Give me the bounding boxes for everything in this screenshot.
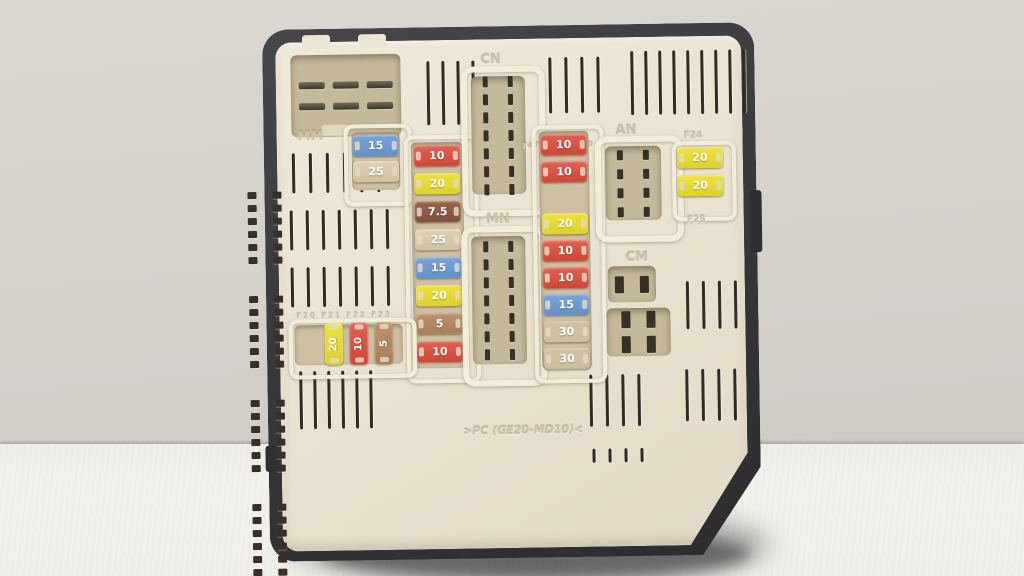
label-cm: CM (625, 250, 648, 265)
vent-slot (387, 266, 391, 306)
fuse-amp-label: 20 (328, 337, 339, 351)
fuse-amp-label: 25 (368, 165, 384, 178)
cn-connector (471, 76, 527, 195)
fuse-amp-label: 20 (693, 179, 709, 192)
pin-slot (252, 504, 261, 511)
pin-slot (643, 149, 649, 159)
vent-slot (292, 153, 296, 193)
vent-slot (728, 50, 732, 114)
mn-pin-slots (471, 236, 527, 365)
vent-slot (327, 371, 331, 429)
vent-slot (371, 266, 375, 306)
vent-slot (621, 374, 625, 426)
vent-slot (714, 50, 718, 114)
pin-slot (253, 530, 262, 537)
pin-slot (640, 275, 649, 292)
pin-slot (251, 426, 260, 433)
vent-slot (354, 209, 358, 249)
frame-tab-right (749, 190, 762, 252)
vent-slot (564, 57, 568, 113)
vent-slot (370, 209, 374, 249)
fuse-amp-label: 7.5 (428, 205, 448, 218)
vent-group (548, 57, 600, 114)
pin-slot (278, 569, 287, 576)
pin-slot (510, 330, 515, 341)
pin-slot (276, 439, 285, 446)
pin-slot (647, 336, 656, 353)
pin-slot (299, 82, 325, 89)
mini-fuse: 20 (542, 213, 588, 235)
vent-slot (702, 281, 706, 329)
pin-slot (247, 192, 256, 199)
far-right-fuse-pair: 20 20 (677, 147, 724, 197)
mini-fuse: 15 (353, 135, 399, 157)
pin-slot (248, 257, 257, 264)
mini-fuse: 5 (374, 322, 393, 364)
pin-slot (251, 452, 260, 459)
pin-slot (509, 294, 514, 305)
pin-slot (508, 240, 513, 251)
mini-fuse: 30 (544, 348, 590, 370)
vent-slot (592, 449, 595, 463)
pin-slot (509, 147, 514, 158)
photo-scene: { "labels": { "mm": "MM", "cn": "CN", "m… (0, 0, 1024, 576)
fuse-amp-label: 20 (692, 151, 708, 164)
vent-slot (548, 57, 552, 113)
vent-slot (686, 281, 690, 329)
pin-slot (248, 244, 257, 251)
vent-slot (309, 153, 313, 193)
cm-connector-lower (606, 308, 671, 357)
fuse-amp-label: 10 (558, 271, 574, 284)
an-connector (605, 146, 662, 221)
pin-slot (253, 517, 262, 524)
pin-slot (367, 102, 393, 109)
pin-slot (646, 311, 655, 328)
fuse-amp-label: 10 (432, 345, 448, 358)
pin-slot (483, 241, 488, 252)
pin-slot (278, 530, 287, 537)
pin-slot (333, 81, 359, 88)
panel-tooth (302, 35, 330, 49)
pin-slot (643, 187, 649, 197)
vent-slot (426, 61, 430, 125)
pin-slot (276, 413, 285, 420)
pin-slot (483, 112, 488, 123)
pin-slot (484, 313, 489, 324)
pin-slot (509, 183, 514, 194)
cm-connector-upper (608, 266, 657, 303)
mini-fuse: 10 (541, 161, 587, 183)
pin-slot (484, 277, 489, 288)
cn-pin-slots (471, 76, 527, 195)
pin-slot (644, 206, 650, 216)
mini-fuse: 10 (417, 341, 463, 363)
pin-slot (483, 130, 488, 141)
mini-fuse: 25 (353, 161, 399, 183)
fuse-amp-label: 15 (368, 139, 384, 152)
pin-slot (484, 184, 489, 195)
vent-slot (456, 61, 460, 125)
fuse-amp-label: 15 (558, 298, 574, 311)
pin-slot (275, 348, 284, 355)
pin-slot (250, 361, 259, 368)
vent-slot (658, 51, 662, 115)
pin-slot (273, 205, 282, 212)
vent-slot (701, 369, 705, 421)
fuse-amp-label: 25 (430, 233, 446, 246)
pin-slot (274, 322, 283, 329)
fuse-amp-label: 10 (353, 336, 364, 350)
pin-slot (617, 150, 623, 160)
fuse-amp-label: 10 (556, 165, 572, 178)
pin-slot (509, 312, 514, 323)
vent-slot (355, 266, 359, 306)
mini-fuse: 20 (416, 285, 462, 307)
vent-slot (355, 370, 359, 428)
pin-slot (273, 218, 282, 225)
pin-slot (615, 276, 624, 293)
pin-slot (278, 556, 287, 563)
vent-slot (717, 369, 721, 421)
pin-slot (622, 336, 631, 353)
vent-slot (686, 50, 690, 114)
pin-slot (253, 543, 262, 550)
fuse-amp-label: 20 (430, 177, 446, 190)
fuse-amp-label: 30 (559, 352, 575, 365)
pin-slot (272, 192, 281, 199)
pin-slot (508, 111, 513, 122)
fuse-amp-label: 20 (431, 289, 447, 302)
pin-slot (299, 103, 325, 110)
pin-slot (508, 258, 513, 269)
fuse-amp-label: 15 (431, 261, 447, 274)
mini-fuse: 10 (541, 134, 587, 156)
pin-slot (621, 311, 630, 328)
vent-slot (630, 51, 634, 115)
left-fuse-pair: 15 25 (353, 135, 400, 183)
pin-slot (248, 205, 257, 212)
mini-fuse: 10 (349, 322, 368, 364)
vent-slot (291, 267, 295, 307)
pin-slot (253, 556, 262, 563)
vent-slot (685, 369, 689, 421)
mini-fuse: 20 (324, 323, 343, 365)
vent-slot (718, 281, 722, 329)
mini-fuse: 15 (543, 294, 589, 316)
pin-slot (276, 426, 285, 433)
vent-slot (299, 371, 303, 429)
vent-slot (326, 153, 330, 193)
mini-fuse: 20 (677, 175, 723, 197)
vent-slot (341, 371, 345, 429)
vent-slot (700, 50, 704, 114)
mid-fuse-column: 10 20 7.5 25 15 20 (414, 145, 463, 363)
cm-lower-slots (606, 308, 671, 357)
pin-slot (250, 348, 259, 355)
pin-slot (251, 400, 260, 407)
pin-slot (248, 218, 257, 225)
pin-slot (250, 335, 259, 342)
vent-slot (313, 371, 317, 429)
vent-slot (306, 210, 310, 250)
pin-slot (509, 165, 514, 176)
mn-connector (471, 236, 527, 365)
fuse-amp-label: 10 (558, 244, 574, 257)
cm-upper-slots (608, 266, 657, 303)
pin-slot (249, 296, 258, 303)
pin-slot (618, 207, 624, 217)
pin-slot (367, 81, 393, 88)
pin-slot (253, 569, 262, 576)
vent-slot (624, 448, 627, 462)
vent-slot (386, 209, 390, 249)
pin-slot (617, 169, 623, 179)
pin-slot (277, 504, 286, 511)
label-cn: CN (480, 52, 501, 67)
vent-slot (644, 51, 648, 115)
panel-tooth (358, 34, 386, 48)
pin-slot (276, 400, 285, 407)
mini-fuse: 10 (543, 267, 589, 289)
pin-slot (274, 309, 283, 316)
pin-slot (510, 348, 515, 359)
pin-slot (333, 102, 359, 109)
pin-slot (273, 244, 282, 251)
an-pin-slots (605, 146, 662, 221)
pin-slot (617, 188, 623, 198)
fuse-amp-label: 30 (559, 325, 575, 338)
vent-group (630, 49, 746, 115)
pin-slot (252, 465, 261, 472)
fuse-amp-label: 10 (556, 138, 572, 151)
vent-slot (640, 448, 643, 462)
pin-slot (278, 517, 287, 524)
mini-fuse: 15 (415, 257, 461, 279)
mini-fuse: 7.5 (415, 201, 461, 223)
pin-slot (275, 335, 284, 342)
pin-slot (509, 276, 514, 287)
vent-slot (290, 210, 294, 250)
bottom-fuse-row: 20 10 5 (324, 322, 393, 365)
pin-slot (275, 361, 284, 368)
pin-slot (278, 543, 287, 550)
vent-group (290, 209, 390, 251)
label-f25: F25 (687, 215, 706, 225)
mini-fuse: 5 (416, 313, 462, 335)
right-fuse-column-top: 10 10 (541, 134, 588, 183)
pin-slot (485, 331, 490, 342)
vent-group (686, 280, 738, 329)
pin-slot (274, 296, 283, 303)
mini-fuse: 10 (542, 240, 588, 262)
pin-slot (251, 439, 260, 446)
pin-slot (277, 465, 286, 472)
vent-slot (605, 374, 609, 426)
mini-fuse: 25 (415, 229, 461, 251)
right-fuse-column-bottom: 20 10 10 15 30 30 (542, 213, 590, 370)
mini-fuse: 30 (543, 321, 589, 343)
mini-fuse: 20 (414, 173, 460, 195)
vent-slot (580, 57, 584, 113)
pin-slot (508, 75, 513, 86)
vent-group (291, 266, 391, 308)
vent-group (685, 368, 737, 421)
pin-slot (483, 259, 488, 270)
vent-slot (307, 267, 311, 307)
fuse-amp-label: 5 (378, 339, 389, 346)
pin-slot (643, 168, 649, 178)
mini-fuse: 10 (414, 145, 460, 167)
pin-slot (251, 413, 260, 420)
fuse-box-module: MM 15 25 (262, 22, 762, 562)
pin-slot (248, 231, 257, 238)
vent-slot (672, 50, 676, 114)
pin-slot (484, 166, 489, 177)
fuse-amp-label: 5 (436, 317, 444, 330)
pin-slot (484, 148, 489, 159)
label-f24: F24 (683, 131, 702, 141)
vent-group (592, 448, 643, 463)
fuse-amp-label: 20 (557, 217, 573, 230)
pin-slot (249, 322, 258, 329)
mini-fuse: 20 (677, 147, 723, 169)
pin-slot (508, 93, 513, 104)
vent-slot (608, 448, 611, 462)
fuse-amp-label: 10 (429, 149, 445, 162)
pin-slot (483, 76, 488, 87)
pin-slot (485, 349, 490, 360)
pin-slot (249, 309, 258, 316)
vent-slot (322, 210, 326, 250)
vent-slot (338, 210, 342, 250)
vent-slot (339, 267, 343, 307)
vent-slot (441, 61, 445, 125)
pin-slot (483, 94, 488, 105)
label-mm: MM (297, 129, 323, 144)
pin-slot (273, 257, 282, 264)
pin-slot (508, 129, 513, 140)
pin-slot (276, 452, 285, 459)
pin-slot (484, 295, 489, 306)
pin-slot (273, 231, 282, 238)
vent-slot (323, 267, 327, 307)
